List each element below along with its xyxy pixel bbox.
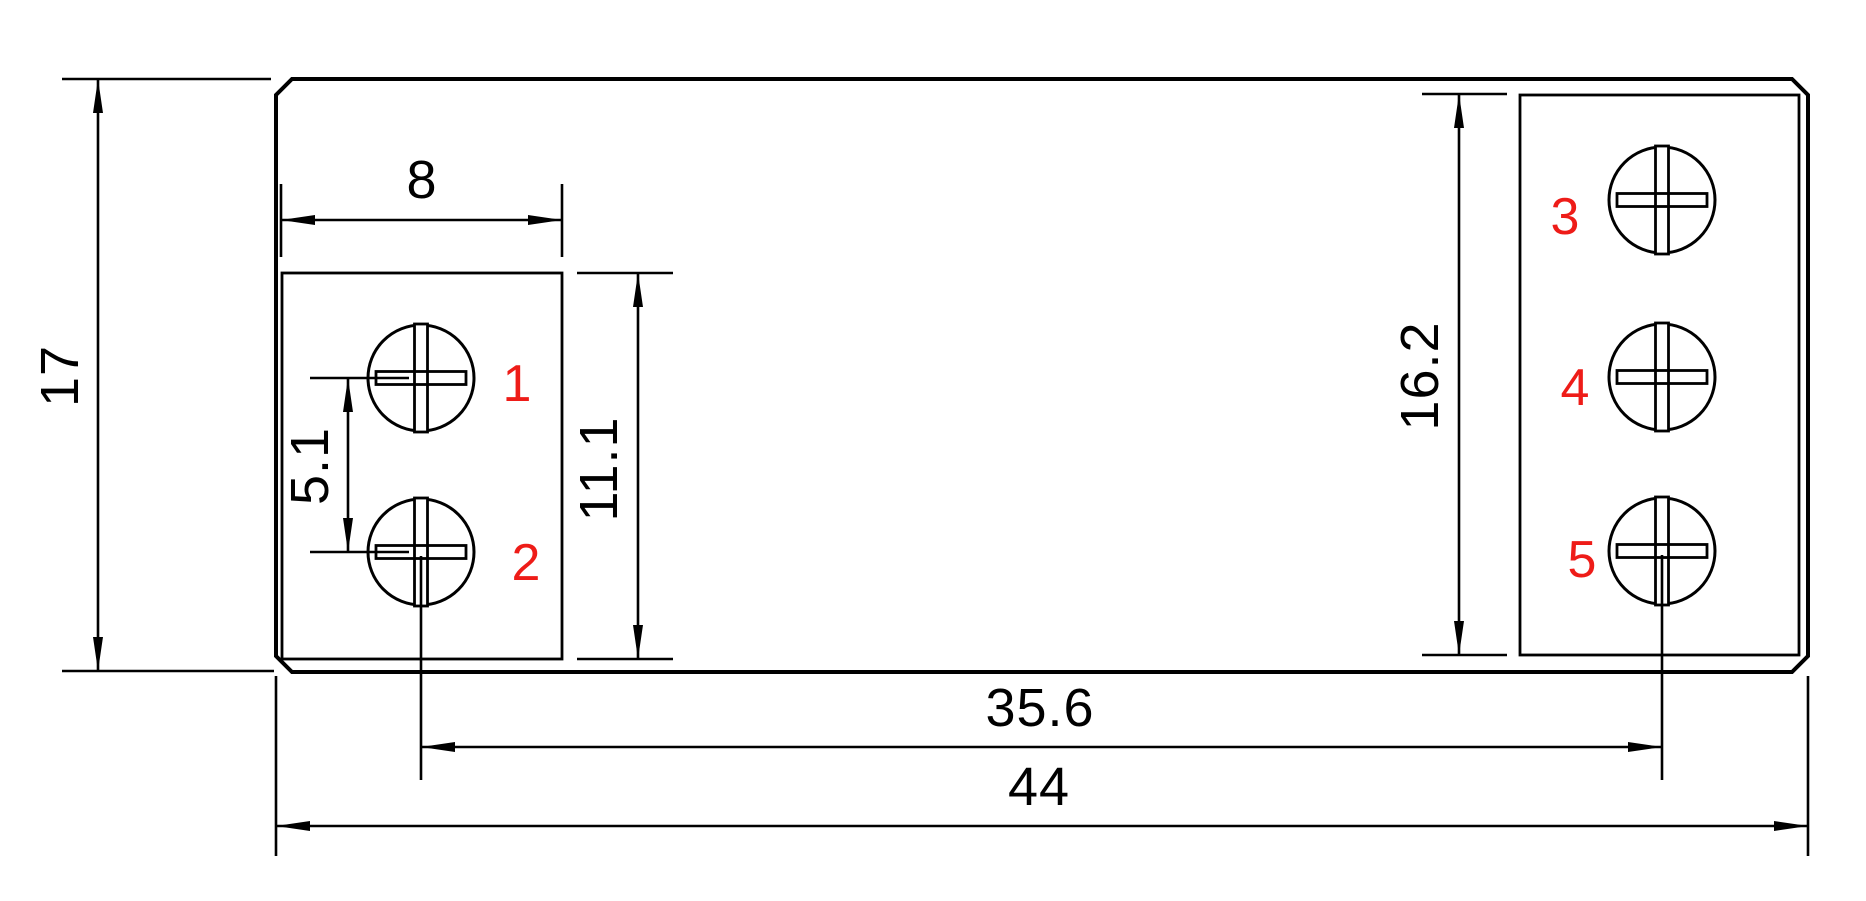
technical-drawing-page: 17 8 5.1 11.1 16.2 35.6 44 <box>0 0 1866 901</box>
terminal-number-3: 3 <box>1551 188 1580 246</box>
technical-drawing-canvas: 17 8 5.1 11.1 16.2 35.6 44 <box>0 0 1866 901</box>
dim-17-extension-ticks <box>62 79 274 671</box>
dim-16-2-label: 16.2 <box>1390 321 1450 430</box>
dimension-left-hole-pitch: 5.1 <box>280 378 353 552</box>
screw-3-slot-h-fill <box>1617 194 1707 207</box>
dim-17-label: 17 <box>30 345 90 407</box>
dimension-left-block-height: 11.1 <box>569 273 673 659</box>
dim-44-label: 44 <box>1008 757 1070 817</box>
dim-5-1-label: 5.1 <box>280 427 340 505</box>
dimension-left-block-width: 8 <box>281 150 562 257</box>
dimension-right-block-height: 16.2 <box>1390 94 1507 655</box>
terminal-number-4: 4 <box>1561 359 1590 417</box>
screw-terminal-3 <box>1609 146 1715 254</box>
dim-8-label: 8 <box>406 150 437 210</box>
dim-35-6-label: 35.6 <box>985 678 1094 738</box>
dimension-hole-span: 35.6 <box>421 678 1662 752</box>
screw-terminal-4 <box>1609 323 1715 431</box>
terminal-number-1: 1 <box>503 355 532 413</box>
terminal-number-5: 5 <box>1568 531 1597 589</box>
screw-4-slot-h-fill <box>1617 371 1707 384</box>
dimension-overall-height: 17 <box>30 79 274 671</box>
dim-11-1-label: 11.1 <box>569 416 629 521</box>
terminal-number-2: 2 <box>512 534 541 592</box>
